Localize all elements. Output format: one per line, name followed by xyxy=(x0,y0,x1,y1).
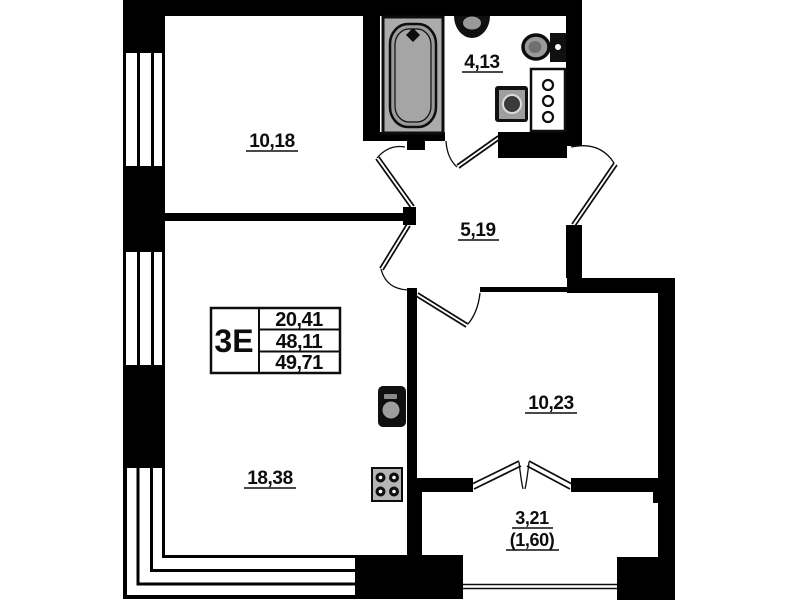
toilet-bowl-inner xyxy=(529,41,542,53)
door-leaf-line xyxy=(527,466,570,489)
wall-right-lower xyxy=(658,278,675,600)
door-swing-arc xyxy=(377,146,405,158)
window-mullion xyxy=(137,252,140,365)
cabinet-knob xyxy=(543,96,553,106)
wall-door-jamb-bedroom-top xyxy=(407,141,425,150)
floor-plan: 10,18 4,13 5,19 18,38 10,23 3,21 (1,60) … xyxy=(0,0,799,600)
wall-bottom-center-pier xyxy=(355,555,463,599)
glazing-line-outer xyxy=(125,468,355,597)
door-swing-arc xyxy=(381,269,408,290)
door-bedroom-right xyxy=(416,293,480,327)
wall-balcony-door-right xyxy=(571,478,658,492)
floor-plan-svg: 10,18 4,13 5,19 18,38 10,23 3,21 (1,60) … xyxy=(0,0,799,600)
door-leaf-line xyxy=(380,224,407,268)
door-leaf-line xyxy=(383,226,410,270)
door-leaf-line xyxy=(416,296,466,327)
wall-corner-stub-right xyxy=(653,478,675,503)
balcony-french-door xyxy=(472,461,572,489)
wall-right-mid xyxy=(566,225,582,278)
wall-kitchen-east xyxy=(407,288,417,478)
door-bathroom xyxy=(446,136,500,168)
area-stamp-table: 3Е 20,41 48,11 49,71 xyxy=(211,308,340,374)
door-leaf-line xyxy=(474,466,521,489)
stamp-total-area: 49,71 xyxy=(275,352,323,374)
window-frame-line xyxy=(162,53,165,166)
basin-inner xyxy=(463,17,481,30)
kitchen-sink xyxy=(378,386,406,427)
cabinet-knob xyxy=(543,112,553,122)
stove-body xyxy=(372,468,402,501)
door-leaf-line xyxy=(376,159,411,208)
corner-glazing xyxy=(125,468,355,597)
door-leaf-line xyxy=(457,136,498,165)
label-bedroom-right-area: 10,23 xyxy=(528,393,574,414)
window-frame-line xyxy=(162,252,165,365)
label-balcony-area: 3,21 xyxy=(515,508,549,528)
burner-center xyxy=(379,490,383,494)
stamp-living-area: 20,41 xyxy=(275,309,323,331)
door-leaf-line xyxy=(575,165,617,226)
door-leaf-line xyxy=(529,461,572,484)
door-leaf-line xyxy=(459,139,500,168)
wall-left-mid xyxy=(123,166,165,252)
stamp-type-label: 3Е xyxy=(214,323,253,359)
wall-right-upper xyxy=(566,0,582,146)
door-swing-arc xyxy=(468,293,480,324)
wash-basin xyxy=(454,16,490,38)
door-leaf-line xyxy=(418,293,468,324)
sink-bowl xyxy=(382,401,401,420)
label-bathroom-area: 4,13 xyxy=(464,52,499,73)
wall-left-lower xyxy=(123,365,165,468)
wall-bathroom-left xyxy=(363,16,380,141)
door-leaf-line xyxy=(572,163,614,224)
cabinet-knob xyxy=(543,80,553,90)
window-frame-line xyxy=(123,252,126,365)
sink-faucet xyxy=(384,394,397,399)
label-kitchen-area: 18,38 xyxy=(247,468,293,489)
door-leaf-line xyxy=(379,157,414,206)
burner-center xyxy=(392,476,396,480)
door-leaf-line xyxy=(472,461,519,484)
bathtub-inner xyxy=(395,29,431,122)
window-mullion xyxy=(137,53,140,166)
stove xyxy=(372,468,402,501)
washing-machine xyxy=(495,86,528,122)
wall-divider-bedroom-kitchen xyxy=(165,213,407,221)
toilet xyxy=(523,33,566,62)
bathtub xyxy=(383,17,443,133)
wall-left-upper xyxy=(123,16,165,53)
wall-door-post xyxy=(403,207,416,225)
toilet-tank-button xyxy=(555,44,561,50)
door-swing-arc xyxy=(571,146,614,163)
label-balcony-area-weighted: (1,60) xyxy=(510,530,555,550)
wall-top xyxy=(123,0,582,16)
label-bedroom-top-area: 10,18 xyxy=(249,131,295,152)
burner-center xyxy=(392,490,396,494)
burner-center xyxy=(379,476,383,480)
window-mullion xyxy=(151,252,154,365)
door-entrance xyxy=(571,146,617,226)
window-frame-line xyxy=(123,53,126,166)
wall-bedroom-right-top-thin xyxy=(480,287,570,292)
door-swing-arc xyxy=(446,141,457,167)
washer-drum xyxy=(503,95,521,113)
door-bedroom-top xyxy=(376,146,414,208)
window-left-upper xyxy=(123,53,165,166)
wall-balcony-left xyxy=(407,478,422,557)
bathroom-cabinet xyxy=(531,69,565,131)
wall-balcony-right-pier xyxy=(617,557,675,600)
door-kitchen xyxy=(380,224,410,290)
stamp-apartment-area: 48,11 xyxy=(276,331,323,353)
window-left-lower xyxy=(123,252,165,365)
window-mullion xyxy=(151,53,154,166)
balcony-railing xyxy=(463,585,617,589)
label-hallway-area: 5,19 xyxy=(460,220,495,241)
